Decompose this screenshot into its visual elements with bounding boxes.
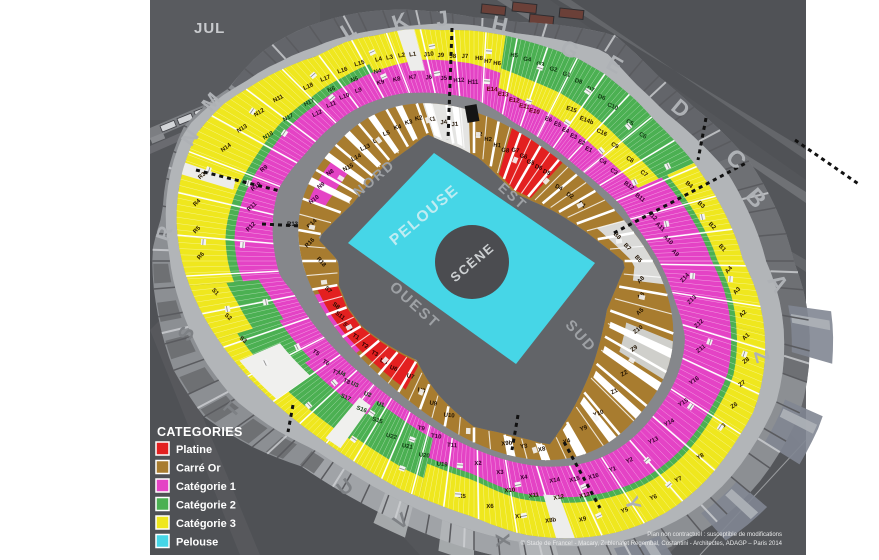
- svg-text:Catégorie 2: Catégorie 2: [176, 500, 236, 512]
- svg-text:H8: H8: [475, 56, 483, 62]
- svg-text:CATEGORIES: CATEGORIES: [157, 425, 243, 439]
- svg-text:© Stade de France! - Macary, Z: © Stade de France! - Macary, Zublena et …: [521, 540, 783, 547]
- svg-text:J7: J7: [462, 54, 469, 60]
- svg-text:H2: H2: [484, 137, 493, 144]
- svg-text:J9: J9: [437, 53, 445, 60]
- svg-text:X2: X2: [474, 461, 482, 467]
- svg-text:Platine: Platine: [176, 444, 212, 456]
- svg-text:E14: E14: [487, 87, 499, 94]
- svg-text:Pelouse: Pelouse: [176, 537, 218, 549]
- svg-text:T11: T11: [447, 443, 458, 450]
- svg-text:J5: J5: [440, 76, 448, 83]
- svg-text:H7: H7: [484, 59, 493, 65]
- svg-text:Catégorie 1: Catégorie 1: [176, 481, 236, 493]
- svg-text:J1: J1: [451, 122, 459, 128]
- svg-text:X: X: [490, 533, 513, 549]
- svg-text:U10: U10: [443, 413, 455, 420]
- svg-text:G4: G4: [523, 56, 532, 63]
- svg-text:J: J: [435, 5, 450, 31]
- svg-text:JUL: JUL: [194, 20, 225, 37]
- svg-text:H12: H12: [453, 78, 465, 85]
- svg-text:H5: H5: [510, 53, 519, 60]
- svg-text:H11: H11: [468, 80, 479, 86]
- svg-text:X4: X4: [520, 475, 529, 482]
- svg-text:Catégorie 3: Catégorie 3: [176, 518, 236, 530]
- svg-text:X3: X3: [496, 470, 504, 477]
- svg-text:Plan non contractuel : suscept: Plan non contractuel : susceptible de mo…: [647, 532, 782, 538]
- svg-text:E13: E13: [497, 91, 509, 98]
- svg-text:H6: H6: [493, 61, 502, 68]
- svg-text:U19: U19: [436, 462, 448, 469]
- svg-text:X10: X10: [504, 487, 516, 494]
- svg-text:Carré Or: Carré Or: [176, 463, 221, 475]
- svg-text:X6: X6: [486, 504, 494, 510]
